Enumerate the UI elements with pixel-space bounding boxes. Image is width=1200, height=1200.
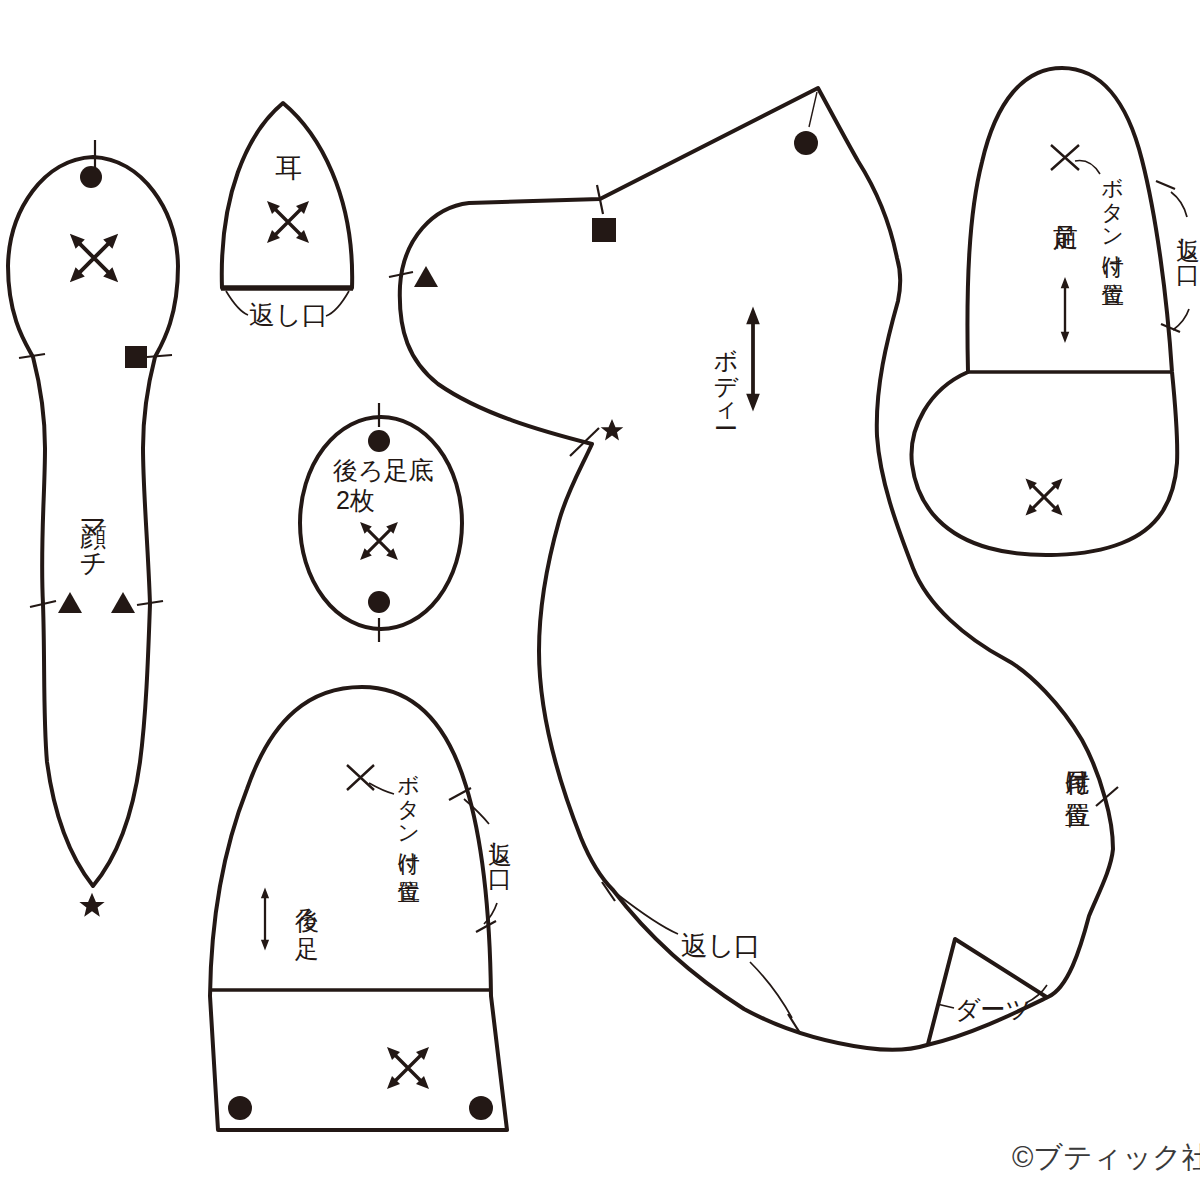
pattern-sheet: 顔マチ 耳 返し口 後ろ足底 2枚 ボディー 返し口 尾付け位置 ダーツ 前足 … [0,0,1200,1200]
star-mark [79,893,104,917]
back-leg-button-label: ボタン付け位置 [396,758,421,865]
dart-label: ダーツ [955,995,1031,1023]
front-leg-outline [912,68,1178,555]
sole-label: 後ろ足底 [333,456,434,484]
dot-mark [794,131,818,155]
dot-mark [368,430,390,452]
front-leg-label: 前足 [1052,205,1080,207]
front-leg-opening-label: 返し口 [1174,220,1200,250]
dot-mark [228,1096,252,1120]
square-mark [592,218,616,242]
tail-position-label: 尾付け位置 [1064,751,1092,785]
back-leg-label: 後ろ足 [293,890,320,920]
sole-quantity-label: 2枚 [336,486,375,514]
publisher-credit: ©ブティック社 [1012,1141,1200,1173]
ear-outline [222,103,352,288]
ear-opening-label: 返し口 [249,301,328,330]
square-mark [125,346,147,368]
body-label: ボディー [712,331,739,417]
back-leg-outline [210,687,507,1130]
dot-mark [469,1096,493,1120]
back-leg-opening-label: 返し口 [486,824,513,854]
dot-mark [80,166,102,188]
face-gusset-label: 顔マチ [78,500,108,565]
body-opening-label: 返し口 [681,931,760,961]
ear-label: 耳 [275,153,302,183]
front-leg-button-label: ボタン付け位置 [1100,161,1125,268]
dot-mark [368,591,390,613]
